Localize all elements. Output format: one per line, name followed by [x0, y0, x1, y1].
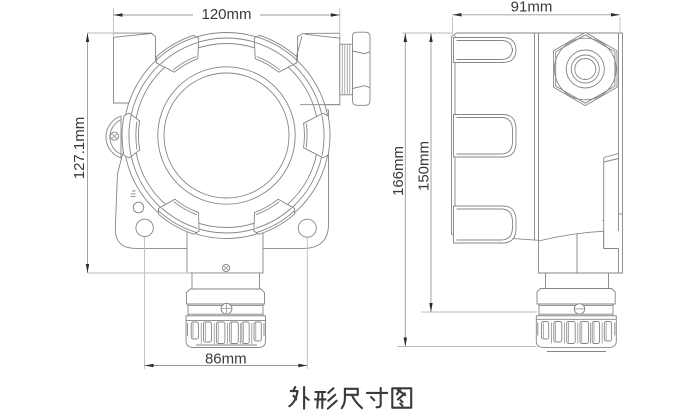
svg-text:120mm: 120mm [201, 6, 251, 23]
svg-text:86mm: 86mm [205, 351, 247, 368]
svg-text:166mm: 166mm [390, 146, 407, 196]
svg-text:150mm: 150mm [416, 141, 433, 191]
svg-text:91mm: 91mm [511, 0, 553, 16]
svg-text:127.1mm: 127.1mm [71, 117, 88, 180]
